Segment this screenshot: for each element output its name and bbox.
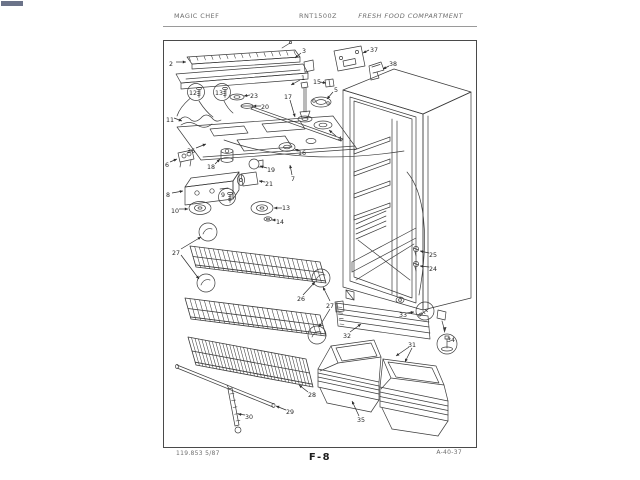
lineart bbox=[197, 57, 199, 61]
lineart bbox=[242, 54, 244, 58]
lineart bbox=[188, 309, 323, 326]
lineart bbox=[204, 56, 206, 60]
top-rails bbox=[176, 41, 314, 89]
leader-arrowhead bbox=[180, 190, 183, 193]
lineart bbox=[339, 318, 343, 319]
part-number-label: 32 bbox=[343, 333, 351, 340]
lineart bbox=[193, 257, 323, 273]
light-bulb bbox=[249, 159, 259, 169]
part-number-label: 28 bbox=[308, 392, 316, 399]
exploded-parts-diagram: 2313738155121323201711436166181978219101… bbox=[0, 0, 640, 480]
part-number-label: 26 bbox=[297, 296, 305, 303]
lineart bbox=[272, 52, 274, 56]
screw-callout-33 bbox=[416, 302, 434, 320]
lineart bbox=[339, 313, 343, 314]
part-number-label: 12 bbox=[189, 90, 197, 97]
wire-shelves bbox=[197, 223, 344, 344]
part-number-label: 10 bbox=[171, 208, 179, 215]
part-number-label: 2 bbox=[169, 61, 173, 68]
part-number-label: 24 bbox=[429, 266, 437, 273]
lineart bbox=[356, 221, 386, 234]
leader-arrowhead bbox=[396, 353, 399, 356]
part-number-label: 16 bbox=[298, 150, 306, 157]
leader-arrowhead bbox=[185, 208, 188, 211]
part-number-label: 30 bbox=[245, 414, 253, 421]
leader-arrowhead bbox=[178, 118, 182, 121]
part-number-label: 37 bbox=[370, 47, 378, 54]
lineart bbox=[338, 307, 342, 308]
lineart bbox=[287, 51, 289, 55]
part-number-label: 33 bbox=[399, 312, 407, 319]
lineart bbox=[279, 52, 281, 56]
part-number-label: 20 bbox=[261, 104, 269, 111]
crisper-drawers bbox=[318, 340, 448, 436]
lineart bbox=[318, 377, 379, 390]
leader-arrowhead bbox=[289, 165, 292, 168]
cabinet bbox=[343, 69, 471, 310]
part-number-label: 3 bbox=[302, 48, 306, 55]
leader-arrowhead bbox=[259, 180, 262, 183]
part-number-label: 34 bbox=[447, 337, 455, 344]
page-number: F-8 bbox=[0, 452, 640, 463]
part-number-label: 15 bbox=[313, 79, 321, 86]
part-number-label: 31 bbox=[408, 342, 416, 349]
part-number-label: 36 bbox=[187, 148, 195, 155]
lineart bbox=[318, 373, 379, 386]
part-number-label: 27 bbox=[172, 250, 180, 257]
lineart bbox=[354, 141, 390, 154]
lineart bbox=[356, 226, 386, 239]
part-number-label: 35 bbox=[357, 417, 365, 424]
lineart bbox=[318, 381, 379, 394]
lineart bbox=[195, 265, 325, 281]
part-number-label: 27 bbox=[326, 303, 334, 310]
lineart bbox=[212, 56, 214, 60]
lineart bbox=[340, 324, 344, 325]
top-panel bbox=[177, 115, 357, 160]
footer-ref: A-40-37 bbox=[436, 449, 462, 456]
part-number-label: 14 bbox=[276, 219, 284, 226]
lineart bbox=[257, 53, 259, 57]
lineart bbox=[354, 185, 390, 198]
lineart bbox=[354, 159, 390, 172]
part-number-label: 19 bbox=[267, 167, 275, 174]
part-number-label: 7 bbox=[291, 176, 295, 183]
leader-arrowhead bbox=[196, 276, 199, 279]
part-number-label: 11 bbox=[166, 117, 174, 124]
lineart bbox=[233, 407, 237, 408]
leader-arrowhead bbox=[358, 324, 361, 327]
capillary-tube bbox=[224, 140, 404, 157]
part-number-label: 4 bbox=[338, 136, 342, 143]
part-number-label: 8 bbox=[166, 192, 170, 199]
mount-plate bbox=[334, 46, 365, 71]
leader-arrowhead bbox=[274, 207, 277, 210]
part-number-label: 17 bbox=[284, 94, 292, 101]
lineart bbox=[235, 414, 239, 415]
part-number-label: 18 bbox=[207, 164, 215, 171]
lineart bbox=[249, 54, 251, 58]
lineart bbox=[192, 351, 310, 373]
pin-and-grommets bbox=[298, 79, 334, 129]
diagram-border bbox=[164, 41, 477, 448]
part-number-label: 13 bbox=[215, 90, 223, 97]
lineart bbox=[380, 401, 448, 415]
part-number-label: 23 bbox=[250, 93, 258, 100]
part-number-label: 1 bbox=[301, 75, 305, 82]
lineart bbox=[294, 51, 296, 55]
part-number-label: 21 bbox=[265, 181, 273, 188]
part-number-label: 38 bbox=[389, 61, 397, 68]
leader-arrowhead bbox=[272, 219, 275, 222]
parts-catalog-page: MAGIC CHEF RNT1500Z FRESH FOOD COMPARTME… bbox=[0, 0, 640, 480]
lineart bbox=[234, 54, 236, 58]
part-number-label: 13 bbox=[282, 205, 290, 212]
lineart bbox=[354, 181, 390, 194]
hinge-bracket bbox=[369, 62, 384, 80]
leveling-foot-callout bbox=[437, 310, 457, 354]
part-number-label: 5 bbox=[334, 87, 338, 94]
lineart bbox=[190, 317, 325, 334]
lineart bbox=[227, 55, 229, 59]
part-number-label: 29 bbox=[286, 409, 294, 416]
lineart bbox=[195, 362, 312, 384]
lineart bbox=[354, 203, 390, 216]
lineart bbox=[354, 163, 390, 176]
lineart bbox=[219, 55, 221, 59]
lineart bbox=[264, 53, 266, 57]
lineart bbox=[354, 207, 390, 220]
leader-arrowhead bbox=[244, 94, 247, 97]
lineart bbox=[232, 400, 236, 401]
part-number-label: 25 bbox=[429, 252, 437, 259]
lineart bbox=[236, 420, 240, 421]
lineart bbox=[354, 137, 390, 150]
part-number-label: 6 bbox=[165, 162, 169, 169]
part-number-label: 9 bbox=[221, 192, 225, 199]
leader-arrowhead bbox=[183, 61, 186, 64]
